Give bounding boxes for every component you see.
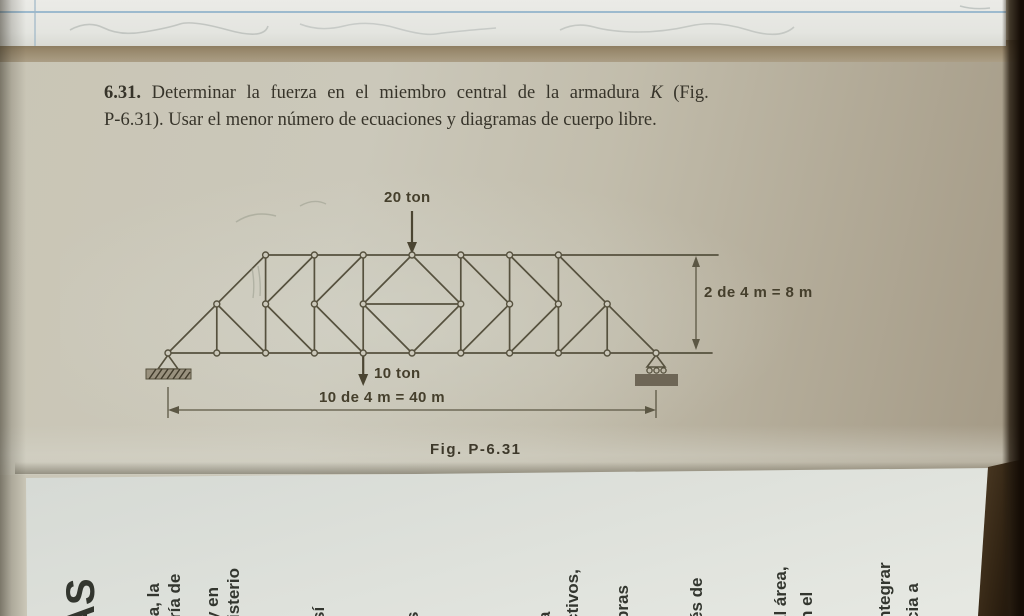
ruled-paper-strip	[0, 0, 1006, 46]
problem-text-1: Determinar la fuerza en el miembro centr…	[152, 83, 640, 103]
rotated-text-fragment: s	[403, 612, 423, 616]
rotated-text-fragment: al área,	[771, 566, 791, 616]
truss-joint	[263, 350, 269, 356]
k-diagonal	[314, 255, 363, 304]
truss-joint	[311, 350, 317, 356]
truss-joint	[555, 350, 561, 356]
problem-line-1: 6.31. Determinar la fuerza en el miembro…	[104, 80, 894, 107]
overlapping-sheet: AS ia, la ría de y en isterio sí s a cti…	[0, 460, 1024, 616]
pencil-handwriting	[0, 0, 1006, 46]
truss-joint	[360, 350, 366, 356]
truss-joint	[360, 252, 366, 258]
truss-joint	[214, 301, 220, 307]
page-edge-dark	[1002, 0, 1024, 616]
truss-joint	[458, 252, 464, 258]
k-diagonal	[461, 304, 510, 353]
left-pin-support	[146, 355, 191, 379]
truss-joint	[360, 301, 366, 307]
height-dimension	[692, 256, 700, 350]
rotated-text-fragment: a	[535, 612, 555, 616]
truss-joint	[604, 301, 610, 307]
truss-joint	[409, 252, 415, 258]
truss-joint	[165, 350, 171, 356]
rotated-text-fragment: y en	[203, 587, 223, 616]
truss-joint	[458, 350, 464, 356]
rotated-text-fragment: cia a	[903, 583, 923, 616]
truss-joint	[604, 350, 610, 356]
problem-line-2: P-6.31). Usar el menor número de ecuacio…	[104, 107, 894, 134]
k-diagonal	[510, 255, 559, 304]
rotated-text-fragment: isterio	[224, 568, 244, 616]
ruled-line	[0, 11, 1006, 13]
bottom-load-label: 10 ton	[374, 365, 421, 382]
truss-joint	[555, 252, 561, 258]
right-roller-support	[635, 355, 678, 386]
figure-caption: Fig. P-6.31	[430, 441, 522, 458]
truss-joint	[507, 350, 513, 356]
k-diagonal	[510, 304, 559, 353]
rotated-text-fragment: ia, la	[144, 583, 164, 616]
rotated-text-fragment: n el	[797, 592, 817, 616]
k-diagonal	[461, 255, 510, 304]
span-dimension-label: 10 de 4 m = 40 m	[292, 389, 472, 406]
truss-joint	[507, 252, 513, 258]
truss-joint	[555, 301, 561, 307]
truss-joint	[458, 301, 464, 307]
truss-symbol: K	[650, 83, 662, 103]
margin-line	[34, 0, 36, 46]
truss-joint	[263, 301, 269, 307]
bottom-load-arrow	[358, 356, 368, 386]
pencil-marks	[236, 201, 326, 298]
truss-joint	[653, 350, 659, 356]
left-edge-shadow	[0, 0, 26, 616]
truss-members	[168, 255, 718, 353]
book-page-photo: 6.31. Determinar la fuerza en el miembro…	[0, 0, 1024, 616]
rotated-text-fragment: és de	[687, 578, 707, 616]
top-load-label: 20 ton	[384, 189, 431, 206]
truss-joint	[311, 252, 317, 258]
truss-joint	[311, 301, 317, 307]
k-diagonal	[266, 304, 315, 353]
truss-joint	[507, 301, 513, 307]
rotated-text-fragment: ría de	[165, 574, 185, 616]
rotated-text-fragment: ntegrar	[875, 562, 895, 616]
top-load-arrow	[407, 211, 417, 254]
truss-joint	[214, 350, 220, 356]
truss-joint	[263, 252, 269, 258]
k-truss-figure	[130, 180, 870, 425]
rotated-text-fragment: sí	[309, 607, 329, 616]
truss-joint	[409, 350, 415, 356]
problem-statement: 6.31. Determinar la fuerza en el miembro…	[104, 80, 894, 134]
problem-text-1-end: (Fig.	[673, 83, 708, 103]
height-dimension-label: 2 de 4 m = 8 m	[704, 284, 813, 301]
rotated-text-fragment: AS	[59, 578, 104, 616]
k-diagonal	[558, 304, 607, 353]
k-diagonal	[266, 255, 315, 304]
k-diagonal	[314, 304, 363, 353]
k-diagonal	[217, 304, 266, 353]
rotated-text-fragment: bras	[613, 585, 633, 616]
problem-number: 6.31.	[104, 83, 141, 103]
rotated-text-fragment: ctivos,	[563, 569, 583, 616]
